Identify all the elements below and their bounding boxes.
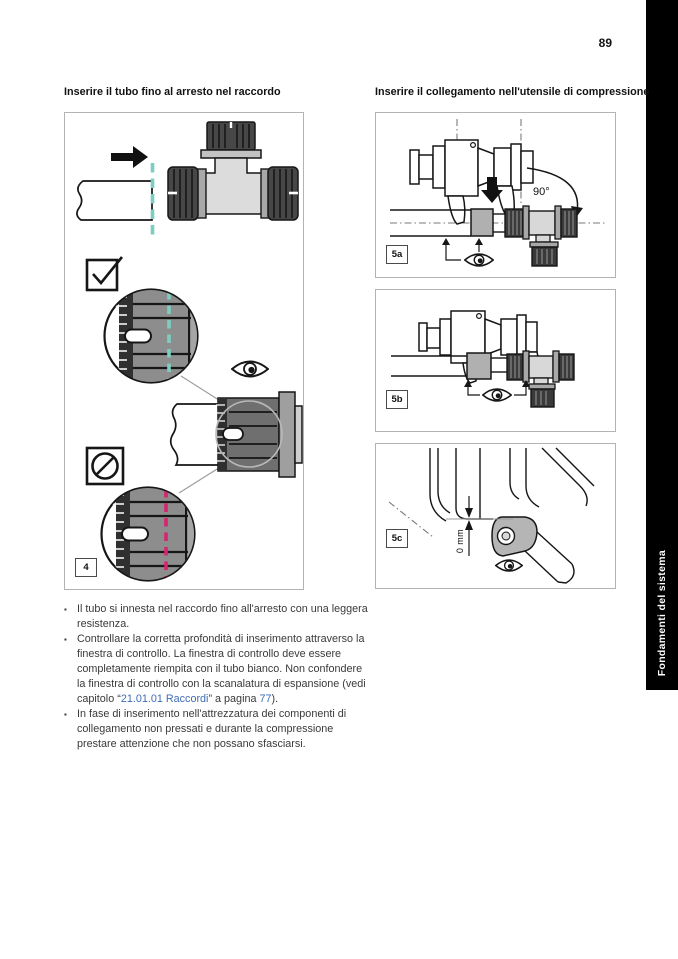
figure-4-diagram [65,113,303,589]
figure-label: 5b [386,390,408,409]
bullet-marker: ▪ [64,602,67,617]
checkbox-checked-icon [87,257,122,290]
list-item: ▪ In fase di inserimento nell'attrezzatu… [64,707,368,752]
eye-icon [496,560,523,571]
list-item-text: Il tubo si innesta nel raccordo fino all… [77,603,368,630]
figure-insert-into-press-tool-step-b: 5b [375,289,616,432]
figure-insert-into-press-tool-step-a: 90° 5a [375,112,616,278]
figure-5c-diagram [376,444,615,588]
page-cross-reference-link[interactable]: 77 [259,693,271,705]
tube-and-fitting-drawing [391,351,574,407]
left-column-heading: Inserire il tubo fino al arresto nel rac… [64,86,281,98]
eye-icon [465,254,493,266]
list-item: ▪ Controllare la corretta profondità di … [64,632,368,707]
tube-in-fitting-drawing [171,392,302,477]
right-column-heading: Inserire il collegamento nell'utensile d… [375,86,649,98]
magnified-detail-correct [105,289,206,383]
chapter-cross-reference-link[interactable]: 21.01.01 Raccordi [121,693,209,705]
tube-drawing [77,181,152,220]
list-item: ▪ Il tubo si innesta nel raccordo fino a… [64,602,368,632]
rotation-angle-annotation: 90° [533,186,550,198]
section-tab: Fondamenti del sistema [646,0,678,690]
pointer-arrowhead [475,238,483,245]
figure-5b-diagram [376,290,615,431]
figure-label: 5a [386,245,408,264]
bullet-marker: ▪ [64,632,67,647]
list-item-text: ). [272,693,279,705]
arrow-right-icon [111,146,148,168]
press-sleeve-drawing [492,517,574,583]
instruction-list: ▪ Il tubo si innesta nel raccordo fino a… [64,602,368,752]
figure-5a-diagram [376,113,615,277]
pointer-arrowhead [442,238,450,245]
list-item-text: ” a pagina [208,693,259,705]
zero-mm-annotation: 0 mm [455,521,465,561]
magnified-detail-wrong [102,487,203,581]
t-fitting-drawing [168,122,298,220]
prohibited-icon [87,448,123,484]
eye-icon [483,389,511,401]
page-number: 89 [554,36,612,50]
section-tab-label: Fondamenti del sistema [656,550,668,676]
figure-label: 4 [75,558,97,577]
figure-insert-tube: 4 [64,112,304,590]
list-item-text: In fase di inserimento nell'attrezzatura… [77,708,346,750]
press-jaw-outline-drawing [430,448,594,521]
figure-label: 5c [386,529,408,548]
bullet-marker: ▪ [64,707,67,722]
figure-insert-into-press-tool-step-c: 0 mm 5c [375,443,616,589]
eye-icon [232,362,268,377]
